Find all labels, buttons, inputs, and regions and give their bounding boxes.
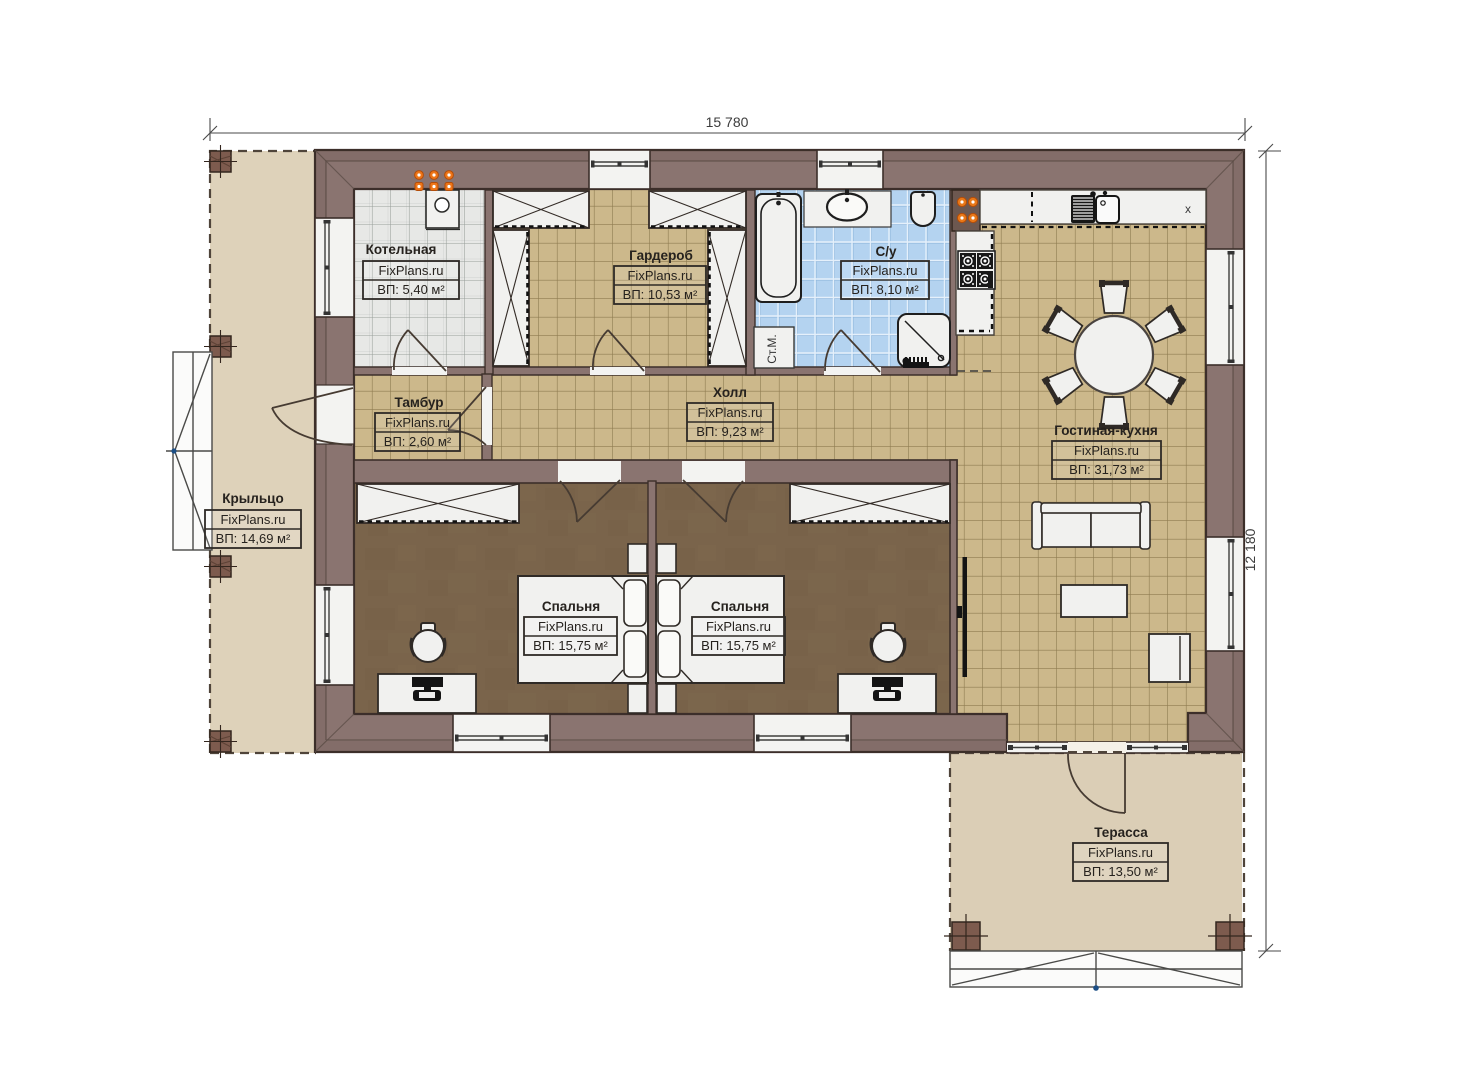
svg-text:ВП: 5,40 м²: ВП: 5,40 м² xyxy=(377,282,445,297)
svg-text:Крыльцо: Крыльцо xyxy=(222,491,283,506)
svg-text:Спальня: Спальня xyxy=(542,599,600,614)
svg-text:12 180: 12 180 xyxy=(1242,528,1258,571)
svg-text:ВП: 31,73 м²: ВП: 31,73 м² xyxy=(1069,462,1144,477)
svg-text:ВП: 8,10 м²: ВП: 8,10 м² xyxy=(851,282,919,297)
svg-text:Котельная: Котельная xyxy=(366,242,437,257)
svg-text:С/у: С/у xyxy=(875,244,897,259)
svg-text:Ст.М.: Ст.М. xyxy=(765,334,779,364)
svg-text:FixPlans.ru: FixPlans.ru xyxy=(852,263,917,278)
svg-text:FixPlans.ru: FixPlans.ru xyxy=(385,415,450,430)
svg-text:ВП: 15,75 м²: ВП: 15,75 м² xyxy=(701,638,776,653)
svg-text:Спальня: Спальня xyxy=(711,599,769,614)
svg-text:ВП: 9,23 м²: ВП: 9,23 м² xyxy=(696,424,764,439)
svg-text:Гардероб: Гардероб xyxy=(629,248,693,263)
svg-text:FixPlans.ru: FixPlans.ru xyxy=(1074,443,1139,458)
svg-text:FixPlans.ru: FixPlans.ru xyxy=(627,268,692,283)
svg-text:FixPlans.ru: FixPlans.ru xyxy=(538,619,603,634)
svg-text:Гостиная-кухня: Гостиная-кухня xyxy=(1054,423,1157,438)
svg-text:x: x xyxy=(1185,202,1191,216)
svg-text:ВП: 13,50 м²: ВП: 13,50 м² xyxy=(1083,864,1158,879)
svg-text:Холл: Холл xyxy=(713,385,747,400)
svg-text:ВП: 10,53 м²: ВП: 10,53 м² xyxy=(623,287,698,302)
svg-text:ВП: 2,60 м²: ВП: 2,60 м² xyxy=(384,434,452,449)
svg-text:FixPlans.ru: FixPlans.ru xyxy=(706,619,771,634)
svg-text:15 780: 15 780 xyxy=(706,114,749,130)
svg-text:Тамбур: Тамбур xyxy=(395,395,444,410)
svg-text:FixPlans.ru: FixPlans.ru xyxy=(697,405,762,420)
svg-text:Терасса: Терасса xyxy=(1094,825,1148,840)
svg-text:FixPlans.ru: FixPlans.ru xyxy=(220,512,285,527)
svg-text:FixPlans.ru: FixPlans.ru xyxy=(378,263,443,278)
svg-text:ВП: 15,75 м²: ВП: 15,75 м² xyxy=(533,638,608,653)
svg-text:FixPlans.ru: FixPlans.ru xyxy=(1088,845,1153,860)
svg-text:ВП: 14,69 м²: ВП: 14,69 м² xyxy=(216,531,291,546)
